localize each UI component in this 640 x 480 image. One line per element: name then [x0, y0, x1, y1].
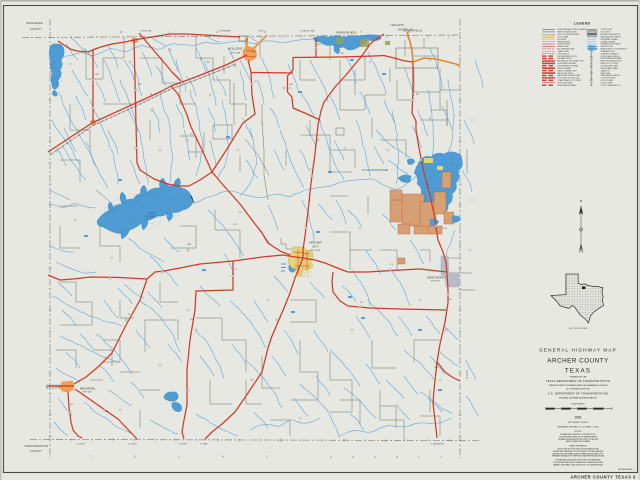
svg-text:KEY TO COUNTIES: KEY TO COUNTIES: [569, 328, 588, 330]
svg-text:CITY: CITY: [312, 245, 319, 249]
svg-text:TO OLNEY: TO OLNEY: [76, 444, 86, 446]
svg-text:O: O: [352, 456, 354, 459]
svg-text:2581: 2581: [434, 367, 438, 369]
svg-text:COUNTY: COUNTY: [30, 27, 42, 31]
svg-text:281: 281: [426, 184, 429, 186]
svg-text:1180: 1180: [340, 53, 344, 55]
svg-text:J A C K: J A C K: [465, 370, 469, 379]
svg-text:ARCHER COUNTY: ARCHER COUNTY: [547, 358, 609, 365]
svg-text:174: 174: [390, 264, 393, 266]
svg-text:PREPARED BY THE: PREPARED BY THE: [570, 376, 587, 379]
svg-text:2393: 2393: [317, 44, 321, 46]
svg-text:G: G: [266, 456, 268, 459]
svg-text:25: 25: [128, 314, 130, 316]
svg-text:U: U: [178, 456, 180, 459]
svg-text:79: 79: [306, 221, 308, 223]
svg-text:THROCKMORTON: THROCKMORTON: [24, 444, 48, 448]
svg-text:926: 926: [105, 411, 108, 413]
svg-text:WF FALLS: WF FALLS: [398, 28, 413, 32]
svg-text:79: 79: [310, 169, 312, 171]
svg-text:LAKE: LAKE: [148, 211, 155, 215]
svg-text:N: N: [222, 456, 224, 459]
svg-text:WILBARGER: WILBARGER: [26, 21, 43, 25]
svg-text:POP 409: POP 409: [431, 281, 440, 283]
svg-text:TEXAS: TEXAS: [565, 368, 591, 375]
svg-text:O: O: [134, 456, 136, 459]
svg-text:TRANSPORTATION PLANNING AND PR: TRANSPORTATION PLANNING AND PROGRAMMING …: [548, 384, 608, 387]
svg-text:174: 174: [360, 302, 363, 304]
svg-text:TEXAS DEPARTMENT OF TRANSPO: TEXAS DEPARTMENT OF TRANSPORTATION: [546, 379, 610, 383]
svg-text:82: 82: [150, 94, 152, 96]
svg-text:U: U: [374, 456, 376, 459]
svg-text:TO JACKSBORO: TO JACKSBORO: [430, 443, 445, 446]
svg-text:HIGHWAYS REVISED TO OCTOBER 1,: HIGHWAYS REVISED TO OCTOBER 1, 1985: [558, 426, 600, 429]
svg-text:H: H: [264, 31, 266, 34]
svg-text:KICKAPOO: KICKAPOO: [145, 215, 159, 219]
svg-text:LITTLE WICHITA RIVER: LITTLE WICHITA RIVER: [362, 169, 389, 172]
svg-text:NOTICE: NOTICE: [575, 431, 583, 433]
svg-text:MEGARGEL: MEGARGEL: [80, 387, 96, 391]
svg-text:POP 1349: POP 1349: [230, 53, 241, 55]
svg-text:1981: 1981: [574, 416, 582, 420]
svg-text:SCALE IN MILES: SCALE IN MILES: [571, 403, 585, 406]
svg-text:210: 210: [190, 134, 193, 136]
svg-text:2178: 2178: [233, 224, 237, 226]
svg-text:1883: 1883: [187, 244, 191, 246]
svg-text:277: 277: [254, 81, 257, 83]
svg-text:ARCHER SHEET 1: ARCHER SHEET 1: [618, 468, 634, 471]
svg-text:82: 82: [200, 59, 202, 61]
svg-text:1954: 1954: [95, 74, 99, 76]
svg-text:COUNTY: COUNTY: [30, 449, 42, 453]
svg-text:TO OLNEY: TO OLNEY: [178, 444, 188, 446]
svg-text:281: 281: [449, 299, 452, 301]
svg-text:25: 25: [235, 269, 237, 271]
svg-text:FEDERAL HIGHWAY ADMINISTRATI: FEDERAL HIGHWAY ADMINISTRATION: [559, 397, 597, 400]
svg-text:TO VALLEY VIEW: TO VALLEY VIEW: [300, 30, 315, 33]
svg-text:COUNTY SEAT AND CITY: COUNTY SEAT AND CITY: [601, 84, 622, 87]
svg-text:GENERAL HIGHWAY MAP: GENERAL HIGHWAY MAP: [539, 348, 617, 353]
svg-text:TO JEAN: TO JEAN: [200, 443, 208, 446]
svg-text:210: 210: [190, 319, 193, 321]
svg-text:TO OLNEY: TO OLNEY: [128, 444, 138, 446]
svg-text:I WICHITA: I WICHITA: [390, 23, 404, 27]
svg-text:HOLLIDAY: HOLLIDAY: [228, 47, 243, 51]
svg-text:LEGEND: LEGEND: [574, 22, 591, 26]
svg-text:DIVERSION RESV: DIVERSION RESV: [336, 32, 357, 35]
svg-text:TO ELECTRA: TO ELECTRA: [140, 30, 152, 33]
svg-text:IN COOPERATION WITH THE: IN COOPERATION WITH THE: [566, 388, 590, 391]
svg-text:TO IOWA PARK: TO IOWA PARK: [218, 30, 232, 33]
svg-text:1862: 1862: [165, 184, 169, 186]
svg-text:WINDTHORST: WINDTHORST: [427, 276, 446, 280]
svg-text:POP 328: POP 328: [83, 392, 92, 394]
svg-text:INTERCHANGE RAMPS: INTERCHANGE RAMPS: [558, 84, 578, 87]
svg-text:HWY DESIGN T SOURCE: HWY DESIGN T SOURCE: [568, 422, 589, 424]
svg-text:281: 281: [416, 94, 419, 96]
svg-text:1180: 1180: [289, 84, 293, 86]
svg-text:POP 1862: POP 1862: [310, 250, 321, 252]
svg-text:ARCHER COUNTY TEXAS 6: ARCHER COUNTY TEXAS 6: [570, 474, 636, 479]
svg-text:C: C: [216, 31, 218, 34]
svg-text:N: N: [396, 456, 398, 459]
svg-text:C: C: [330, 456, 332, 459]
svg-text:251: 251: [70, 404, 73, 406]
svg-text:U.S. DEPARTMENT OF TRANSPOR: U.S. DEPARTMENT OF TRANSPORTATION: [548, 392, 608, 396]
svg-text:C L A Y C O U N T Y: C L A Y C O U N T Y: [465, 150, 469, 174]
svg-text:368: 368: [138, 84, 141, 86]
